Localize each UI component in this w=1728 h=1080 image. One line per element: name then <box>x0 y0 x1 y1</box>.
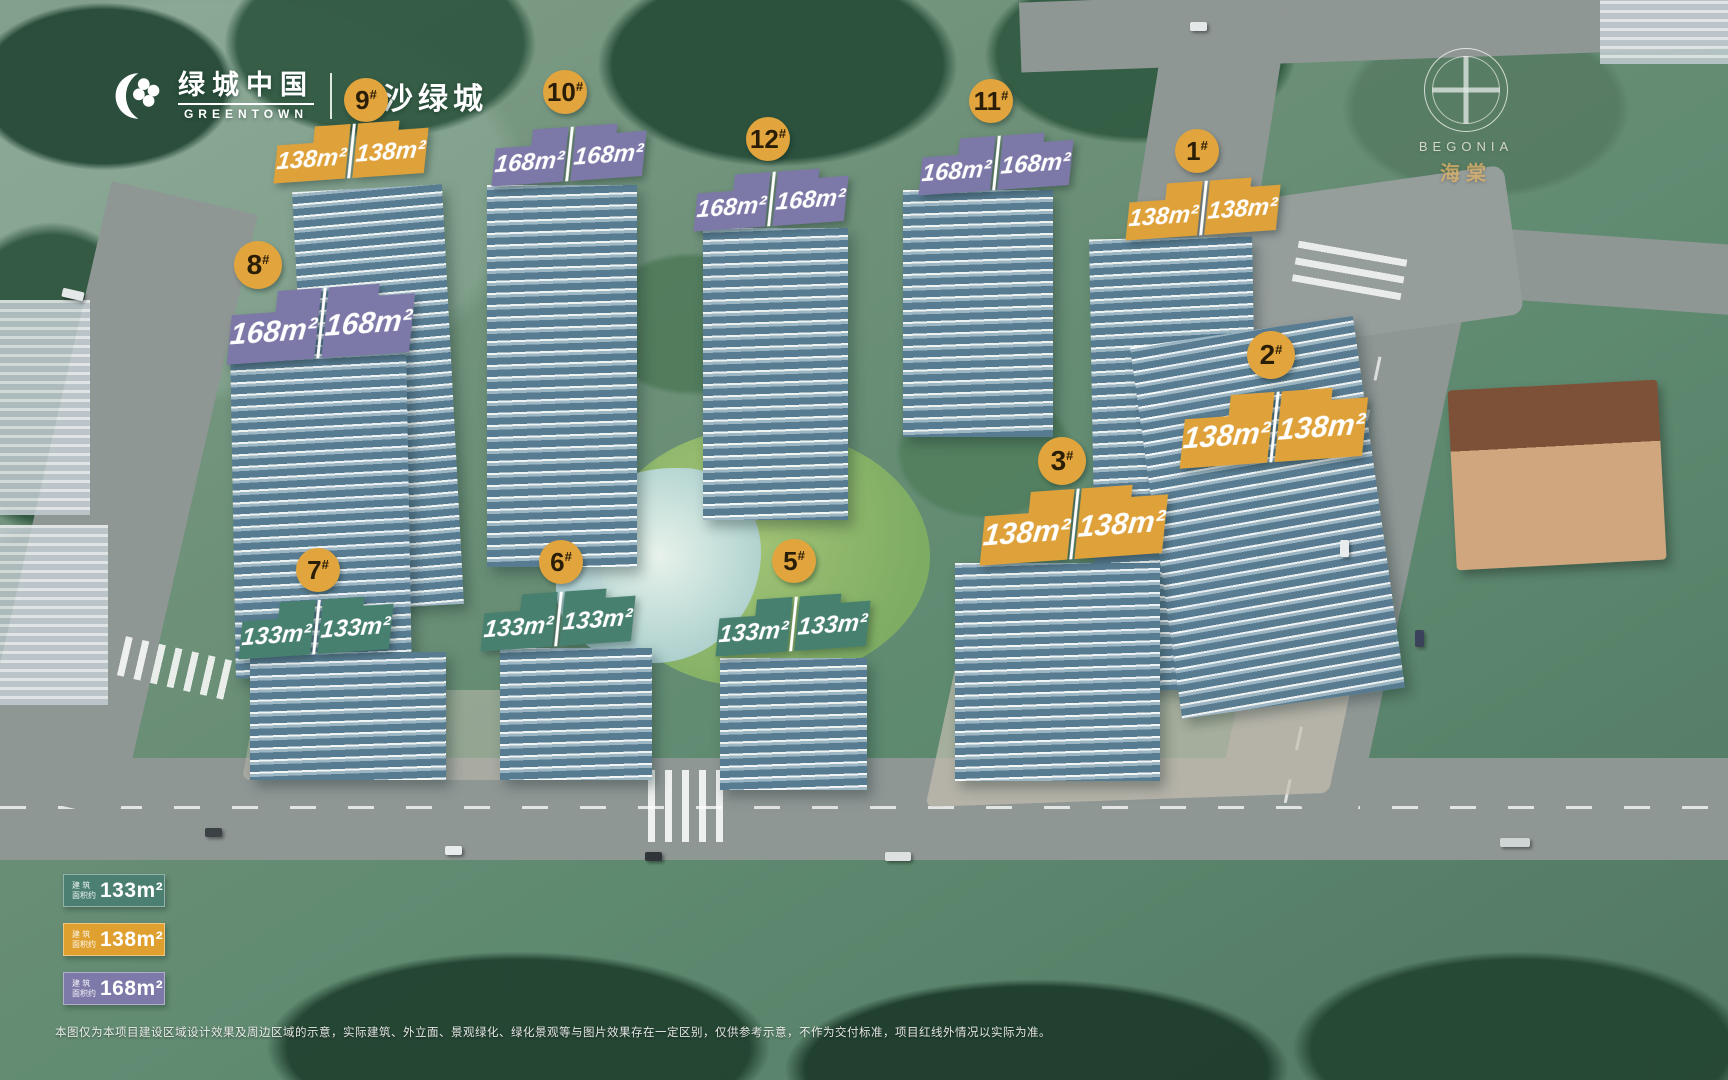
vehicle <box>1415 630 1424 647</box>
building-2-number-badge: 2# <box>1247 331 1295 379</box>
legend-item-168: 建 筑面积约 168m² <box>63 972 165 1005</box>
building-11-number-badge: 11# <box>969 79 1013 123</box>
unit-area-tag: 133m² <box>480 592 558 652</box>
building-number: 9 <box>355 85 369 116</box>
begonia-emblem-icon <box>1424 48 1508 132</box>
brand-name-cn: 绿城中国 <box>178 71 314 101</box>
offsite-building <box>1600 0 1728 64</box>
legend-item-138: 建 筑面积约 138m² <box>63 923 165 956</box>
building-number: 2 <box>1260 339 1276 371</box>
offsite-building <box>0 300 90 515</box>
unit-area-tag: 133m² <box>715 597 793 657</box>
building-8-number-badge: 8# <box>234 241 282 289</box>
legend-prefix: 建 筑面积约 <box>72 881 96 899</box>
building-2-label-group: 2# 138m²138m² <box>1183 392 1366 462</box>
tower-12 <box>703 228 848 520</box>
legend-area-value: 138m² <box>100 928 163 952</box>
tower-3 <box>955 563 1160 781</box>
unit-area-tag: 168m² <box>491 127 569 187</box>
vehicle <box>1190 22 1207 31</box>
brand-divider-line <box>178 103 314 105</box>
hash-suffix: # <box>1201 138 1208 153</box>
hash-suffix: # <box>565 549 572 564</box>
area-legend: 建 筑面积约 133m² 建 筑面积约 138m² 建 筑面积约 168m² <box>63 874 165 1005</box>
unit-area-tag: 138m² <box>352 118 430 178</box>
legend-prefix: 建 筑面积约 <box>72 930 96 948</box>
brand-header: 绿城中国 GREENTOWN 长沙绿城 <box>106 70 488 122</box>
unit-area-tag: 138m² <box>980 489 1075 566</box>
unit-area-tag: 168m² <box>321 281 416 358</box>
unit-area-tag: 168m² <box>997 130 1075 190</box>
hash-suffix: # <box>370 87 377 102</box>
building-12-number-badge: 12# <box>746 117 790 161</box>
brand-vertical-divider <box>330 73 332 119</box>
building-12-label-group: 12# 168m²168m² <box>696 172 847 226</box>
building-1-label-group: 1# 138m²138m² <box>1128 181 1279 235</box>
tower-5 <box>720 658 867 790</box>
building-7-label-group: 7# 133m²133m² <box>241 600 392 654</box>
vehicle <box>645 852 662 861</box>
disclaimer-text: 本图仅为本项目建设区域设计效果及周边区域的示意，实际建筑、外立面、景观绿化、绿化… <box>55 1024 1255 1040</box>
unit-area-tag: 133m² <box>559 586 637 646</box>
vehicle <box>445 846 462 855</box>
building-6-label-group: 6# 133m²133m² <box>483 592 634 646</box>
vehicle <box>205 828 222 837</box>
unit-area-tag: 168m² <box>570 121 648 181</box>
vehicle <box>1340 540 1349 557</box>
project-watermark: BEGONIA 海棠 <box>1398 48 1534 186</box>
hash-suffix: # <box>322 557 329 572</box>
hash-suffix: # <box>779 126 786 141</box>
unit-area-tag: 133m² <box>317 594 395 654</box>
building-9-number-badge: 9# <box>344 78 388 122</box>
hash-suffix: # <box>262 252 269 267</box>
building-number: 8 <box>247 249 263 281</box>
building-number: 5 <box>783 546 797 577</box>
building-number: 1 <box>1186 136 1200 167</box>
building-6-number-badge: 6# <box>539 540 583 584</box>
unit-area-tag: 133m² <box>794 591 872 651</box>
building-number: 12 <box>750 124 779 155</box>
tower-11 <box>903 190 1053 437</box>
unit-area-tag: 168m² <box>227 288 322 365</box>
offsite-building <box>0 525 108 705</box>
brand-lockup: 绿城中国 GREENTOWN <box>178 71 314 122</box>
building-3-number-badge: 3# <box>1038 437 1086 485</box>
building-number: 3 <box>1051 445 1067 477</box>
building-10-label-group: 10# 168m²168m² <box>494 127 645 181</box>
building-9-label-group: 9# 138m²138m² <box>276 124 427 178</box>
building-10-number-badge: 10# <box>543 70 587 114</box>
building-number: 11 <box>974 86 1002 117</box>
offsite-villa <box>1447 380 1666 571</box>
hash-suffix: # <box>1001 88 1008 103</box>
unit-area-tag: 168m² <box>772 166 850 226</box>
vehicle <box>1500 838 1530 847</box>
building-3-label-group: 3# 138m²138m² <box>983 489 1166 559</box>
building-number: 6 <box>550 547 564 578</box>
unit-area-tag: 138m² <box>1125 181 1203 241</box>
legend-item-133: 建 筑面积约 133m² <box>63 874 165 907</box>
hash-suffix: # <box>798 548 805 563</box>
hash-suffix: # <box>576 79 583 94</box>
building-11-label-group: 11# 168m²168m² <box>921 136 1072 190</box>
brand-name-en: GREENTOWN <box>184 107 308 121</box>
building-number: 10 <box>547 77 576 108</box>
tower-7 <box>250 652 446 780</box>
hash-suffix: # <box>1275 342 1282 357</box>
tower-6 <box>500 648 652 780</box>
watermark-name-cn: 海棠 <box>1440 157 1492 186</box>
unit-area-tag: 138m² <box>1204 175 1282 235</box>
building-number: 7 <box>307 555 321 586</box>
greentown-logo-icon <box>106 70 162 122</box>
hash-suffix: # <box>1066 448 1073 463</box>
legend-area-value: 133m² <box>100 879 163 903</box>
building-5-number-badge: 5# <box>772 539 816 583</box>
unit-area-tag: 168m² <box>918 136 996 196</box>
watermark-name-en: BEGONIA <box>1419 139 1513 154</box>
building-1-number-badge: 1# <box>1175 129 1219 173</box>
unit-area-tag: 133m² <box>238 600 316 660</box>
legend-prefix: 建 筑面积约 <box>72 979 96 997</box>
vehicle <box>885 852 911 861</box>
legend-area-value: 168m² <box>100 977 163 1001</box>
unit-area-tag: 138m² <box>1180 392 1275 469</box>
unit-area-tag: 138m² <box>1074 482 1169 559</box>
building-5-label-group: 5# 133m²133m² <box>718 597 869 651</box>
unit-area-tag: 138m² <box>1274 385 1369 462</box>
unit-area-tag: 168m² <box>693 172 771 232</box>
tower-10 <box>487 185 637 567</box>
building-7-number-badge: 7# <box>296 548 340 592</box>
unit-area-tag: 138m² <box>273 124 351 184</box>
building-8-label-group: 8# 168m²168m² <box>230 288 413 358</box>
